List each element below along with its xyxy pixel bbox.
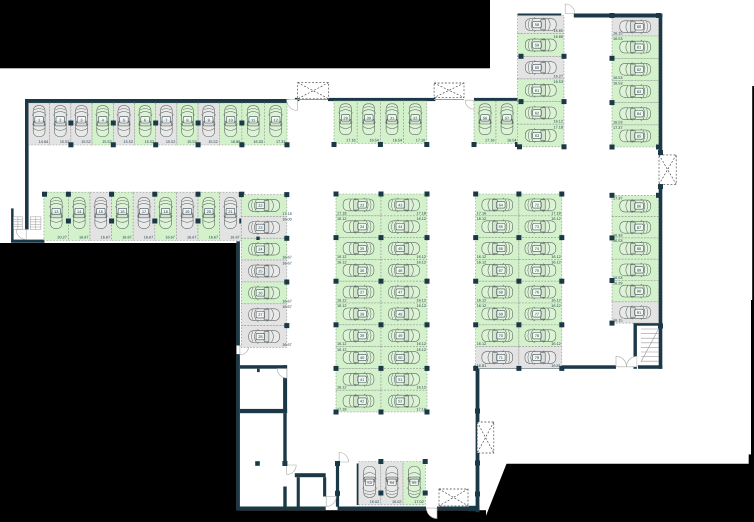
- svg-text:17.37: 17.37: [613, 126, 623, 130]
- svg-text:17.18: 17.18: [551, 211, 561, 215]
- svg-text:79: 79: [535, 355, 539, 360]
- svg-text:16.12: 16.12: [416, 255, 426, 259]
- svg-text:16: 16: [120, 209, 124, 214]
- svg-text:16.12: 16.12: [477, 342, 487, 346]
- svg-text:16.67: 16.67: [282, 261, 292, 265]
- svg-text:16.67: 16.67: [165, 236, 175, 240]
- svg-text:16.12: 16.12: [551, 299, 561, 303]
- svg-text:38: 38: [360, 311, 364, 316]
- svg-text:67: 67: [499, 268, 503, 273]
- svg-text:78: 78: [535, 333, 539, 338]
- svg-text:3: 3: [80, 117, 82, 122]
- svg-text:13: 13: [54, 209, 58, 214]
- svg-text:15.52: 15.52: [81, 140, 91, 144]
- svg-text:37: 37: [360, 290, 364, 295]
- svg-text:69: 69: [499, 311, 503, 316]
- svg-text:89: 89: [637, 267, 641, 272]
- svg-text:15: 15: [99, 209, 103, 214]
- svg-text:6: 6: [144, 117, 146, 122]
- svg-text:16.12: 16.12: [416, 217, 426, 221]
- svg-text:61: 61: [535, 88, 539, 93]
- svg-text:16.15: 16.15: [613, 32, 623, 36]
- svg-text:16.53: 16.53: [553, 80, 563, 84]
- svg-text:16.53: 16.53: [613, 37, 623, 41]
- svg-text:9: 9: [208, 117, 210, 122]
- svg-text:16.54: 16.54: [369, 139, 379, 143]
- svg-text:86: 86: [637, 204, 641, 209]
- svg-text:16.12: 16.12: [337, 255, 347, 259]
- svg-text:16.86: 16.86: [231, 140, 241, 144]
- svg-text:43: 43: [398, 202, 402, 207]
- svg-text:1: 1: [38, 117, 40, 122]
- svg-text:82: 82: [637, 67, 641, 72]
- svg-text:16.67: 16.67: [144, 236, 154, 240]
- svg-text:16.66: 16.66: [553, 35, 563, 39]
- svg-text:16.67: 16.67: [187, 236, 197, 240]
- svg-text:81: 81: [637, 45, 641, 50]
- svg-text:16.53: 16.53: [613, 76, 623, 80]
- svg-text:17.37: 17.37: [276, 140, 286, 144]
- svg-text:17.18: 17.18: [553, 125, 563, 129]
- svg-text:16.12: 16.12: [416, 342, 426, 346]
- svg-text:45: 45: [398, 246, 402, 251]
- svg-text:53: 53: [367, 480, 371, 485]
- svg-text:11: 11: [251, 117, 255, 122]
- svg-text:16.67: 16.67: [230, 236, 240, 240]
- svg-text:52: 52: [398, 399, 402, 404]
- svg-text:17.02: 17.02: [414, 500, 424, 504]
- svg-text:15.52: 15.52: [187, 140, 197, 144]
- svg-text:16.12: 16.12: [416, 348, 426, 352]
- svg-text:17: 17: [142, 209, 146, 214]
- svg-text:16.12: 16.12: [477, 299, 487, 303]
- svg-text:16.12: 16.12: [337, 304, 347, 308]
- svg-text:12: 12: [274, 117, 278, 122]
- svg-text:20.27: 20.27: [57, 236, 67, 240]
- svg-text:16.67: 16.67: [79, 236, 89, 240]
- svg-text:71: 71: [499, 355, 503, 360]
- svg-text:5: 5: [123, 117, 125, 122]
- svg-text:87: 87: [637, 225, 641, 230]
- svg-text:77: 77: [535, 311, 539, 316]
- svg-text:62: 62: [535, 110, 539, 115]
- svg-text:16.12: 16.12: [337, 217, 347, 221]
- svg-text:27: 27: [258, 312, 262, 317]
- svg-text:28: 28: [258, 334, 262, 339]
- svg-text:35: 35: [360, 246, 364, 251]
- svg-text:25: 25: [258, 269, 262, 274]
- svg-text:16.65: 16.65: [553, 29, 563, 33]
- svg-text:18: 18: [163, 209, 167, 214]
- svg-text:16.27: 16.27: [553, 74, 563, 78]
- svg-text:59: 59: [535, 43, 539, 48]
- svg-text:16.12: 16.12: [477, 304, 487, 308]
- svg-text:57: 57: [505, 115, 509, 120]
- svg-text:17.16: 17.16: [346, 139, 356, 143]
- svg-text:56: 56: [483, 115, 487, 120]
- svg-text:19: 19: [185, 209, 189, 214]
- svg-text:15.52: 15.52: [208, 140, 218, 144]
- svg-text:16.12: 16.12: [416, 304, 426, 308]
- svg-text:16.67: 16.67: [282, 299, 292, 303]
- svg-text:15.52: 15.52: [145, 140, 155, 144]
- svg-text:16.12: 16.12: [551, 217, 561, 221]
- svg-text:15.52: 15.52: [60, 140, 70, 144]
- svg-text:21: 21: [228, 209, 232, 214]
- svg-text:16.12: 16.12: [553, 120, 563, 124]
- svg-text:17.18: 17.18: [282, 212, 292, 216]
- svg-text:16.12: 16.12: [416, 261, 426, 265]
- svg-text:16.12: 16.12: [337, 348, 347, 352]
- svg-text:46: 46: [398, 268, 402, 273]
- svg-text:58: 58: [535, 22, 539, 27]
- svg-text:16.12: 16.12: [477, 255, 487, 259]
- svg-text:16.12: 16.12: [337, 261, 347, 265]
- svg-text:8: 8: [186, 117, 188, 122]
- svg-text:15.52: 15.52: [102, 140, 112, 144]
- svg-text:55: 55: [412, 480, 416, 485]
- svg-text:22: 22: [258, 203, 262, 208]
- svg-text:88: 88: [637, 246, 641, 251]
- svg-text:83: 83: [637, 89, 641, 94]
- svg-text:41: 41: [360, 377, 364, 382]
- svg-text:16.54: 16.54: [393, 139, 403, 143]
- svg-text:73: 73: [535, 224, 539, 229]
- svg-text:17.16: 17.16: [416, 139, 426, 143]
- svg-text:16.67: 16.67: [122, 236, 132, 240]
- svg-text:16.12: 16.12: [337, 299, 347, 303]
- svg-text:16.53: 16.53: [613, 120, 623, 124]
- svg-text:91: 91: [637, 310, 641, 315]
- svg-text:16.67: 16.67: [282, 256, 292, 260]
- svg-text:16.00: 16.00: [282, 218, 292, 222]
- svg-text:63: 63: [535, 133, 539, 138]
- svg-text:2: 2: [59, 117, 61, 122]
- svg-text:16.67: 16.67: [282, 343, 292, 347]
- svg-text:16.12: 16.12: [477, 217, 487, 221]
- svg-text:66: 66: [499, 246, 503, 251]
- svg-text:16.12: 16.12: [551, 342, 561, 346]
- svg-text:85: 85: [637, 133, 641, 138]
- svg-text:31: 31: [390, 115, 394, 120]
- svg-text:23: 23: [258, 225, 262, 230]
- svg-text:48: 48: [398, 311, 402, 316]
- svg-text:14.04: 14.04: [39, 140, 49, 144]
- svg-text:39: 39: [360, 333, 364, 338]
- svg-text:68: 68: [499, 290, 503, 295]
- svg-text:16.67: 16.67: [282, 305, 292, 309]
- svg-text:16.33: 16.33: [253, 140, 263, 144]
- svg-text:36: 36: [360, 268, 364, 273]
- svg-text:49: 49: [398, 333, 402, 338]
- svg-text:16.12: 16.12: [337, 342, 347, 346]
- svg-text:16.53: 16.53: [613, 82, 623, 86]
- svg-text:15.52: 15.52: [123, 140, 133, 144]
- svg-text:16.12: 16.12: [477, 261, 487, 265]
- svg-text:17.18: 17.18: [416, 211, 426, 215]
- svg-text:16.02: 16.02: [392, 500, 402, 504]
- svg-text:16.12: 16.12: [551, 255, 561, 259]
- svg-text:16.12: 16.12: [551, 261, 561, 265]
- svg-text:29: 29: [343, 115, 347, 120]
- svg-text:26: 26: [258, 290, 262, 295]
- svg-text:16.12: 16.12: [337, 386, 347, 390]
- svg-text:16.12: 16.12: [551, 304, 561, 308]
- svg-text:16.12: 16.12: [416, 299, 426, 303]
- svg-text:17.18: 17.18: [337, 211, 347, 215]
- svg-text:32: 32: [413, 115, 417, 120]
- svg-text:47: 47: [398, 290, 402, 295]
- svg-text:15.52: 15.52: [166, 140, 176, 144]
- svg-text:16.02: 16.02: [370, 500, 380, 504]
- svg-text:16.67: 16.67: [101, 236, 111, 240]
- svg-text:65: 65: [499, 224, 503, 229]
- svg-text:17.16: 17.16: [477, 211, 487, 215]
- svg-text:72: 72: [535, 202, 539, 207]
- svg-text:42: 42: [360, 399, 364, 404]
- svg-text:16.67: 16.67: [209, 236, 219, 240]
- svg-text:75: 75: [535, 268, 539, 273]
- svg-text:33: 33: [360, 202, 364, 207]
- svg-text:76: 76: [535, 290, 539, 295]
- svg-text:51: 51: [398, 377, 402, 382]
- svg-text:16.12: 16.12: [416, 386, 426, 390]
- svg-text:7: 7: [165, 117, 167, 122]
- svg-text:17.16: 17.16: [485, 139, 495, 143]
